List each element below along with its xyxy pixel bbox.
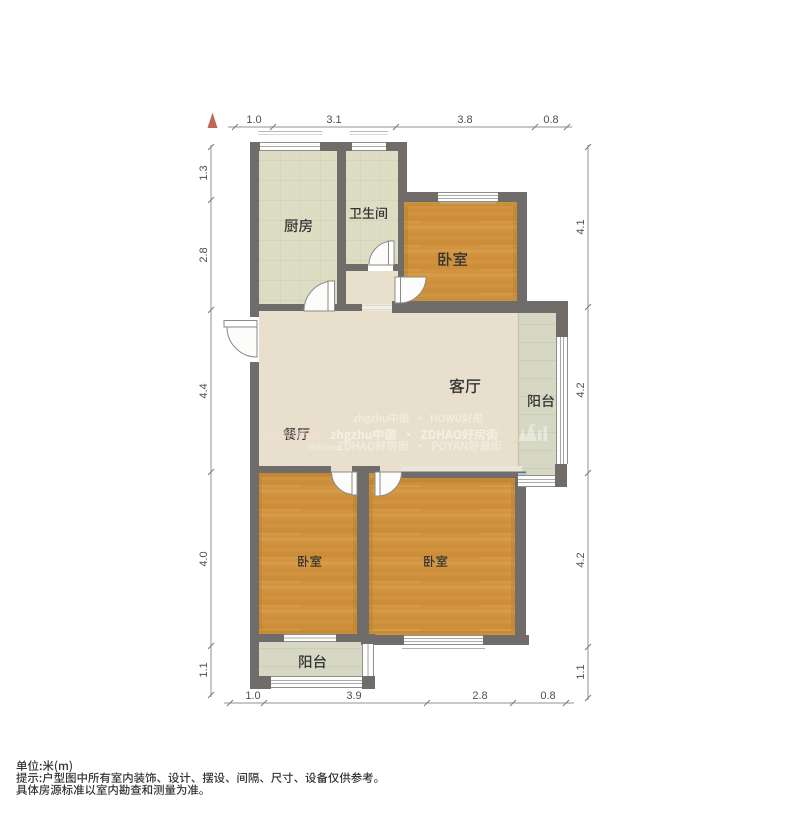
- svg-text:2.8: 2.8: [198, 247, 210, 262]
- svg-text:0.8: 0.8: [543, 114, 558, 126]
- svg-text:4.2: 4.2: [575, 382, 587, 397]
- svg-text:3.8: 3.8: [457, 114, 472, 126]
- svg-text:1.0: 1.0: [246, 114, 261, 126]
- svg-text:3.9: 3.9: [346, 690, 361, 702]
- svg-text:3.1: 3.1: [326, 114, 341, 126]
- svg-text:4.2: 4.2: [575, 552, 587, 567]
- svg-text:4.1: 4.1: [575, 219, 587, 234]
- svg-text:1.3: 1.3: [198, 165, 210, 180]
- svg-text:4.4: 4.4: [198, 383, 210, 398]
- svg-text:0.8: 0.8: [540, 690, 555, 702]
- svg-text:2.8: 2.8: [472, 690, 487, 702]
- svg-text:4.0: 4.0: [198, 551, 210, 566]
- svg-text:1.0: 1.0: [245, 690, 260, 702]
- svg-text:1.1: 1.1: [575, 664, 587, 679]
- svg-text:1.1: 1.1: [198, 662, 210, 677]
